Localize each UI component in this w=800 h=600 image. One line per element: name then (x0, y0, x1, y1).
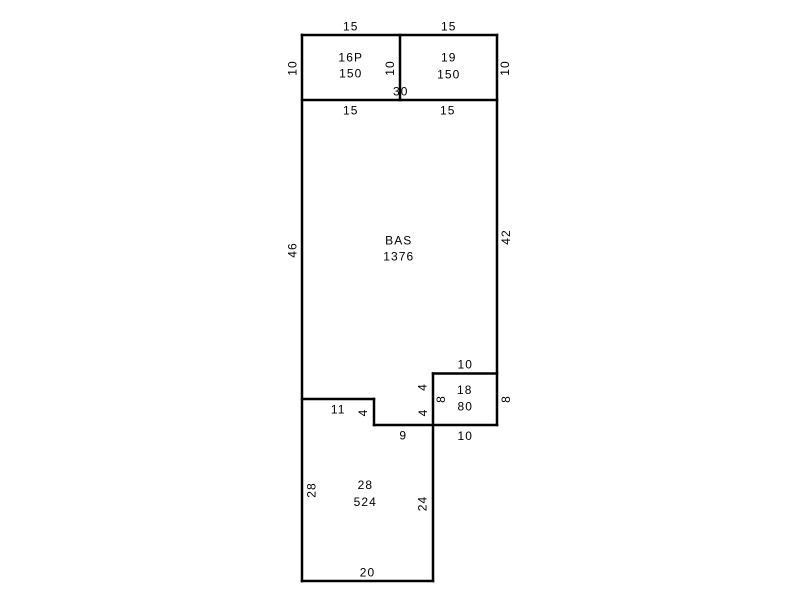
svg-text:8: 8 (499, 395, 513, 403)
svg-text:15: 15 (441, 19, 457, 33)
svg-text:4: 4 (416, 409, 430, 417)
svg-text:28: 28 (358, 478, 374, 492)
svg-text:BAS: BAS (385, 233, 412, 247)
svg-text:4: 4 (356, 409, 370, 417)
svg-text:16P: 16P (338, 50, 363, 64)
svg-text:28: 28 (305, 482, 319, 498)
svg-text:24: 24 (416, 496, 430, 512)
svg-text:150: 150 (339, 66, 362, 80)
svg-text:11: 11 (331, 402, 346, 416)
svg-text:8: 8 (434, 395, 448, 403)
svg-text:10: 10 (383, 60, 397, 76)
svg-text:10: 10 (457, 357, 473, 371)
svg-text:80: 80 (457, 399, 473, 413)
svg-text:42: 42 (499, 229, 513, 245)
svg-text:150: 150 (437, 67, 460, 81)
svg-text:10: 10 (498, 60, 512, 76)
svg-text:46: 46 (286, 242, 300, 258)
svg-text:10: 10 (286, 60, 300, 76)
svg-text:15: 15 (343, 103, 359, 117)
svg-text:1376: 1376 (383, 249, 414, 263)
svg-text:10: 10 (457, 429, 473, 443)
svg-text:19: 19 (441, 50, 457, 64)
svg-text:4: 4 (416, 383, 430, 391)
svg-text:30: 30 (393, 84, 409, 98)
svg-text:524: 524 (354, 495, 377, 509)
svg-text:15: 15 (343, 19, 359, 33)
svg-text:20: 20 (360, 565, 376, 579)
svg-text:9: 9 (399, 428, 407, 442)
svg-text:18: 18 (457, 383, 473, 397)
svg-text:15: 15 (440, 103, 456, 117)
